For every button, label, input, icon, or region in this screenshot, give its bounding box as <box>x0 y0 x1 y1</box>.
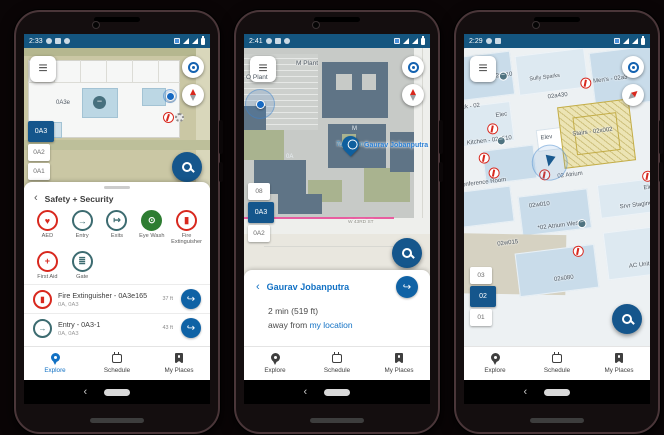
search-icon <box>402 248 412 258</box>
result-distance: 43 ft <box>163 325 174 331</box>
my-places-icon <box>175 353 183 363</box>
result-subtitle: 0A, 0A3 <box>58 302 157 308</box>
bottom-sheet: ‹ Safety + Security ♥ AED → Entry ↦ Exit… <box>24 182 210 346</box>
search-button[interactable] <box>172 152 202 182</box>
android-back-button[interactable]: ‹ <box>524 387 528 398</box>
cast-icon <box>174 38 180 44</box>
alarm-icon <box>46 38 52 44</box>
earpiece-speaker <box>534 17 580 22</box>
tab-my-places[interactable]: My Places <box>588 347 650 380</box>
earpiece-speaker <box>314 17 360 22</box>
floor-selector: 0A3 0A2 0A1 <box>28 120 54 181</box>
room-shape <box>464 186 515 229</box>
wall-line <box>132 60 133 82</box>
battery-icon <box>421 38 425 45</box>
directions-button[interactable] <box>181 318 201 338</box>
fire-extinguisher-icon[interactable] <box>163 112 174 123</box>
aed-icon: ♥ <box>37 210 58 231</box>
road-line <box>422 48 423 226</box>
status-bar: 2:29 <box>464 34 650 48</box>
bottom-speaker <box>310 418 364 423</box>
category-fire-extinguisher[interactable]: ▮ Fire Extinguisher <box>169 210 204 246</box>
compass-button[interactable] <box>402 84 424 106</box>
tab-explore[interactable]: Explore <box>24 347 86 380</box>
explore-icon <box>271 353 280 362</box>
indoor-map[interactable]: 02n020 *02 North A Conference Room Print… <box>464 48 650 346</box>
screen-3: 2:29 <box>464 34 650 404</box>
search-icon <box>182 162 192 172</box>
signal-icon <box>632 38 638 44</box>
fire-extinguisher-icon: ▮ <box>33 290 52 309</box>
search-icon <box>622 314 632 324</box>
screenshot-icon <box>55 38 61 44</box>
tab-my-places[interactable]: My Places <box>148 347 210 380</box>
first-aid-icon: + <box>37 251 58 272</box>
room-label: Elec <box>643 184 650 191</box>
my-location-link[interactable]: my location <box>310 320 353 330</box>
status-time: 2:29 <box>469 38 483 45</box>
room-shape <box>603 223 650 280</box>
room-shape <box>515 48 589 96</box>
compass-button[interactable] <box>182 84 204 106</box>
floor-chip[interactable]: 03 <box>470 267 492 284</box>
battery-icon <box>201 38 205 45</box>
floor-chip[interactable]: 0A2 <box>248 225 270 242</box>
room-shape <box>597 177 650 219</box>
power-button <box>219 162 223 182</box>
bottom-speaker <box>530 418 584 423</box>
schedule-icon <box>112 354 122 363</box>
result-title: Entry - 0A3-1 <box>58 320 157 329</box>
scene: 2:33 <box>0 0 664 435</box>
gate-icon: ≣ <box>72 251 93 272</box>
status-bar: 2:33 <box>24 34 210 48</box>
floor-selector: 08 0A3 0A2 <box>248 182 274 243</box>
compass-icon <box>627 89 640 101</box>
android-home-pill[interactable] <box>544 389 570 396</box>
app-notification-icon <box>64 38 70 44</box>
phone-1: 2:33 <box>14 10 220 434</box>
tab-explore[interactable]: Explore <box>244 347 306 380</box>
room-label: 0A3e <box>56 100 70 106</box>
map-road <box>24 48 210 56</box>
campus-map[interactable]: M Plant O Plant M Turtle Pon 0A W 43RD S… <box>244 48 430 276</box>
pin-label: Gaurav Jobanputra <box>364 142 428 149</box>
power-button <box>439 162 443 182</box>
result-row[interactable]: ▮ Fire Extinguisher - 0A3e165 0A, 0A3 37… <box>24 284 210 313</box>
entry-icon: → <box>72 210 93 231</box>
floor-selector: 03 02 01 <box>470 266 496 327</box>
sheet-drag-handle[interactable] <box>104 186 130 189</box>
schedule-icon <box>552 354 562 363</box>
android-nav-bar: ‹ <box>24 380 210 404</box>
cast-icon <box>394 38 400 44</box>
building <box>390 132 416 172</box>
result-title: Fire Extinguisher - 0A3e165 <box>58 291 157 300</box>
android-back-button[interactable]: ‹ <box>84 387 88 398</box>
eta-text: 2 min (519 ft) <box>244 300 430 316</box>
signal-icon <box>412 38 418 44</box>
wall-line <box>106 60 107 82</box>
result-distance: 37 ft <box>163 296 174 302</box>
result-row[interactable]: → Entry - 0A3-1 0A, 0A3 43 ft <box>24 313 210 342</box>
lawn <box>244 130 284 160</box>
directions-button[interactable] <box>396 276 418 298</box>
away-text: away from my location <box>244 316 430 336</box>
entry-icon: → <box>33 319 52 338</box>
courtyard <box>336 74 352 90</box>
room-label: 02n020 <box>464 48 479 51</box>
front-camera <box>92 21 100 29</box>
tab-schedule[interactable]: Schedule <box>86 347 148 380</box>
screenshot-icon <box>275 38 281 44</box>
front-camera <box>312 21 320 29</box>
category-entry[interactable]: → Entry <box>65 210 100 246</box>
category-first-aid[interactable]: + First Aid <box>30 251 65 280</box>
tab-explore[interactable]: Explore <box>464 347 526 380</box>
bottom-sheet: ‹ Gaurav Jobanputra 2 min (519 ft) away … <box>244 270 430 346</box>
my-places-icon <box>395 353 403 363</box>
compass-icon <box>190 89 196 101</box>
explore-icon <box>51 353 60 362</box>
app-notification-icon <box>284 38 290 44</box>
status-time: 2:41 <box>249 38 263 45</box>
building <box>322 62 388 118</box>
building-label: M <box>352 126 357 132</box>
locate-button[interactable] <box>622 56 644 78</box>
gear-icon <box>175 113 184 122</box>
category-aed[interactable]: ♥ AED <box>30 210 65 246</box>
elevator-icon <box>496 136 506 146</box>
screen-1: 2:33 <box>24 34 210 404</box>
locate-button[interactable] <box>182 56 204 78</box>
signal-icon <box>192 38 198 44</box>
wifi-icon <box>623 38 629 44</box>
eye-wash-icon: ⊙ <box>141 210 162 231</box>
battery-icon <box>641 38 645 45</box>
volume-button <box>439 120 443 154</box>
front-camera <box>532 21 540 29</box>
street-label: W 43RD ST <box>348 220 374 225</box>
building-label: 0A <box>286 154 293 160</box>
building <box>278 194 322 214</box>
locate-icon <box>628 62 639 73</box>
bottom-nav: Explore Schedule My Places <box>464 346 650 380</box>
cast-icon <box>614 38 620 44</box>
phone-3: 2:29 <box>454 10 660 434</box>
schedule-icon <box>332 354 342 363</box>
android-home-pill[interactable] <box>104 389 130 396</box>
tab-schedule[interactable]: Schedule <box>526 347 588 380</box>
status-time: 2:33 <box>29 38 43 45</box>
menu-button[interactable] <box>470 56 496 82</box>
exit-icon: ↦ <box>106 210 127 231</box>
floor-chip[interactable]: 0A3 <box>248 202 274 223</box>
explore-icon <box>491 353 500 362</box>
locate-button[interactable] <box>402 56 424 78</box>
android-home-pill[interactable] <box>324 389 350 396</box>
android-nav-bar: ‹ <box>244 380 430 404</box>
sheet-title: Gaurav Jobanputra <box>267 282 350 292</box>
back-button[interactable]: ‹ <box>256 282 260 293</box>
courtyard <box>362 74 376 90</box>
bottom-speaker <box>90 418 144 423</box>
lawn <box>364 168 410 202</box>
fire-extinguisher-icon: ▮ <box>176 210 197 231</box>
floor-chip[interactable]: 01 <box>470 309 492 326</box>
android-nav-bar: ‹ <box>464 380 650 404</box>
alarm-icon <box>266 38 272 44</box>
back-button[interactable]: ‹ <box>34 193 38 204</box>
locate-icon <box>408 62 419 73</box>
sheet-title: Safety + Security <box>45 194 114 204</box>
floor-chip[interactable]: 0A2 <box>28 144 50 161</box>
phone-2: 2:41 <box>234 10 440 434</box>
bottom-nav: Explore Schedule My Places <box>244 346 430 380</box>
menu-button[interactable] <box>30 56 56 82</box>
category-gate[interactable]: ≣ Gate <box>65 251 100 280</box>
screenshot-icon <box>495 38 501 44</box>
wifi-icon <box>183 38 189 44</box>
map-label: O Plant <box>246 74 268 81</box>
indoor-map[interactable]: 0A3e 0A3 0A2 0A1 <box>24 48 210 188</box>
floor-chip[interactable]: 02 <box>470 286 496 307</box>
search-button[interactable] <box>612 304 642 334</box>
screen-2: 2:41 <box>244 34 430 404</box>
android-back-button[interactable]: ‹ <box>304 387 308 398</box>
parking-line <box>264 246 404 247</box>
wall-line <box>158 60 159 82</box>
category-eye-wash[interactable]: ⊙ Eye Wash <box>134 210 169 246</box>
tab-schedule[interactable]: Schedule <box>306 347 368 380</box>
elevator-icon <box>93 96 106 109</box>
category-exits[interactable]: ↦ Exits <box>100 210 135 246</box>
earpiece-speaker <box>94 17 140 22</box>
volume-button <box>659 120 663 154</box>
bottom-nav: Explore Schedule My Places <box>24 346 210 380</box>
category-grid: ♥ AED → Entry ↦ Exits ⊙ Eye Wash <box>24 207 210 284</box>
compass-icon <box>410 89 416 101</box>
compass-button[interactable] <box>622 84 644 106</box>
my-places-icon <box>615 353 623 363</box>
map-label: M Plant <box>296 60 318 67</box>
search-button[interactable] <box>392 238 422 268</box>
floor-chip[interactable]: 0A3 <box>28 121 54 142</box>
wall-line <box>80 60 81 82</box>
volume-button <box>219 120 223 154</box>
floor-chip[interactable]: 0A1 <box>28 163 50 180</box>
tab-my-places[interactable]: My Places <box>368 347 430 380</box>
status-bar: 2:41 <box>244 34 430 48</box>
result-subtitle: 0A, 0A3 <box>58 331 157 337</box>
directions-button[interactable] <box>181 289 201 309</box>
room-label: 02a430 <box>547 92 568 100</box>
first-aid-icon[interactable] <box>580 77 592 89</box>
floor-chip[interactable]: 08 <box>248 183 270 200</box>
locate-icon <box>188 62 199 73</box>
power-button <box>659 162 663 182</box>
room-shape <box>515 244 600 297</box>
wall-line <box>28 82 180 83</box>
alarm-icon <box>486 38 492 44</box>
wifi-icon <box>403 38 409 44</box>
